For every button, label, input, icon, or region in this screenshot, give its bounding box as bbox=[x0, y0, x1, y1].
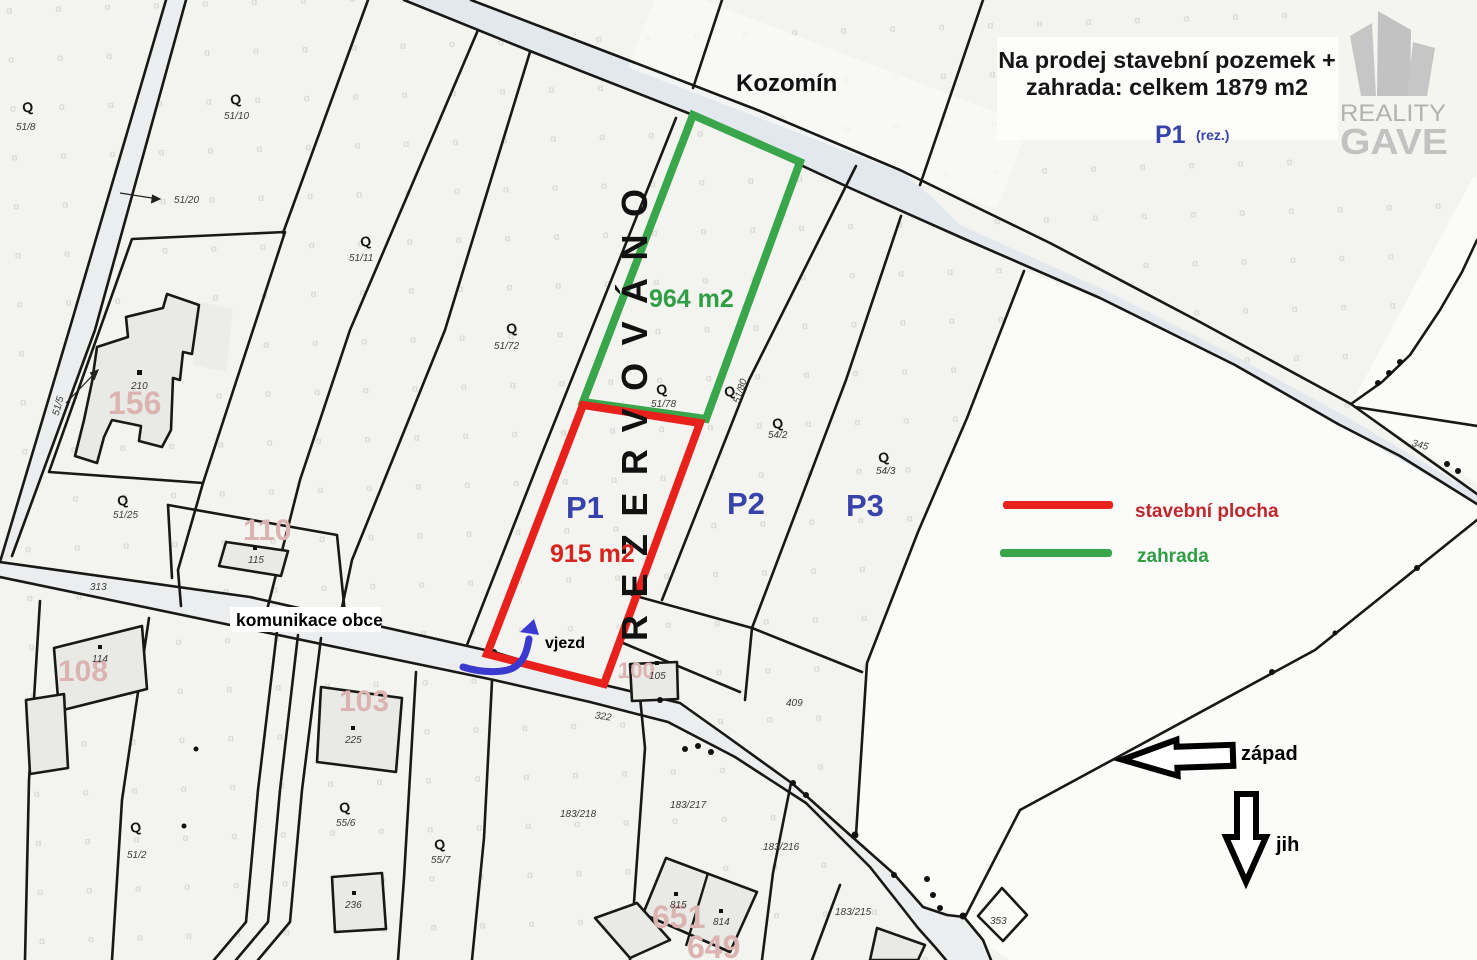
svg-text:649: 649 bbox=[687, 929, 740, 960]
svg-text:komunikace obce: komunikace obce bbox=[236, 610, 383, 630]
svg-text:183/216: 183/216 bbox=[763, 842, 800, 853]
svg-text:183/215: 183/215 bbox=[835, 907, 872, 918]
svg-text:P2: P2 bbox=[727, 486, 765, 521]
svg-text:964 m2: 964 m2 bbox=[649, 285, 734, 313]
svg-text:Kozomín: Kozomín bbox=[736, 70, 837, 97]
svg-text:GAVE: GAVE bbox=[1340, 121, 1448, 162]
svg-text:409: 409 bbox=[786, 698, 803, 709]
svg-text:stavební plocha: stavební plocha bbox=[1135, 501, 1279, 522]
svg-text:225: 225 bbox=[344, 735, 362, 746]
svg-text:110: 110 bbox=[243, 514, 291, 547]
svg-text:183/218: 183/218 bbox=[560, 809, 597, 820]
svg-text:51/10: 51/10 bbox=[224, 111, 249, 122]
svg-text:210: 210 bbox=[130, 381, 148, 392]
svg-text:P3: P3 bbox=[846, 488, 884, 523]
svg-text:103: 103 bbox=[339, 685, 389, 718]
svg-text:Na prodej stavební pozemek +: Na prodej stavební pozemek + bbox=[998, 47, 1336, 73]
svg-text:353: 353 bbox=[990, 916, 1007, 927]
svg-text:jih: jih bbox=[1275, 834, 1299, 856]
svg-text:P1: P1 bbox=[566, 490, 604, 525]
svg-text:51/8: 51/8 bbox=[16, 122, 36, 133]
svg-text:54/3: 54/3 bbox=[876, 466, 896, 477]
svg-text:západ: západ bbox=[1241, 743, 1298, 765]
svg-text:51/72: 51/72 bbox=[494, 341, 519, 352]
svg-text:zahrada: celkem 1879 m2: zahrada: celkem 1879 m2 bbox=[1026, 74, 1308, 100]
svg-text:236: 236 bbox=[344, 900, 362, 911]
svg-text:51/20: 51/20 bbox=[174, 195, 199, 206]
svg-text:54/2: 54/2 bbox=[768, 430, 788, 441]
svg-text:51/11: 51/11 bbox=[349, 253, 373, 264]
svg-text:114: 114 bbox=[92, 654, 108, 665]
svg-text:(rez.): (rez.) bbox=[1196, 127, 1229, 143]
svg-text:51/2: 51/2 bbox=[127, 850, 147, 861]
svg-text:zahrada: zahrada bbox=[1137, 546, 1209, 567]
svg-text:815: 815 bbox=[670, 900, 687, 911]
svg-text:814: 814 bbox=[713, 917, 730, 928]
svg-text:915 m2: 915 m2 bbox=[550, 540, 635, 568]
svg-text:183/217: 183/217 bbox=[670, 800, 707, 811]
svg-text:P1: P1 bbox=[1155, 121, 1186, 149]
svg-text:313: 313 bbox=[90, 582, 107, 593]
svg-text:vjezd: vjezd bbox=[545, 635, 585, 652]
svg-text:51/25: 51/25 bbox=[113, 510, 138, 521]
svg-text:55/6: 55/6 bbox=[336, 818, 356, 829]
svg-text:55/7: 55/7 bbox=[431, 855, 451, 866]
svg-text:105: 105 bbox=[649, 671, 666, 682]
svg-text:115: 115 bbox=[248, 555, 264, 566]
